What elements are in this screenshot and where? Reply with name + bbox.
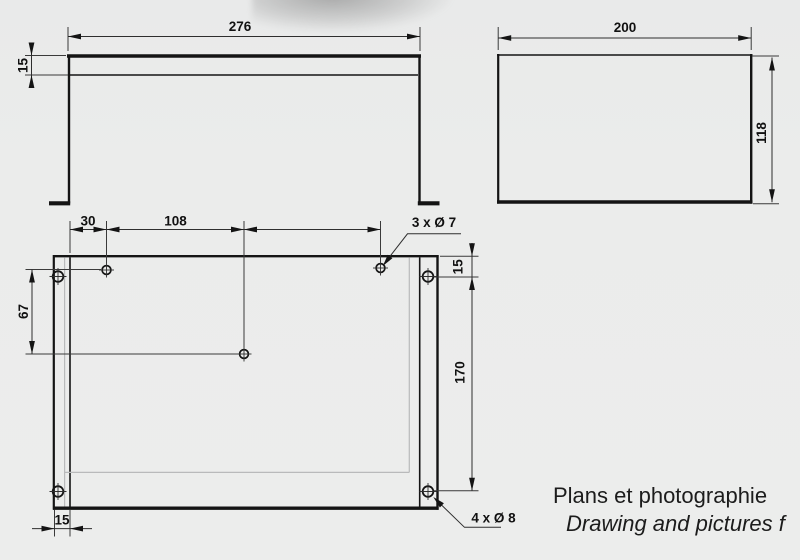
side-height-label: 118 [754, 122, 769, 144]
hole-row-offset-label: 67 [16, 304, 31, 319]
front-view-width-dimension: 276 [68, 19, 420, 51]
plan-view-right-dimensions: 15 170 [434, 243, 479, 491]
side-view-height-dimension: 118 [752, 56, 779, 204]
small-holes-callout-label: 3 x Ø 7 [412, 215, 456, 230]
front-width-label: 276 [229, 19, 252, 34]
small-holes-callout: 3 x Ø 7 [383, 215, 461, 266]
large-holes-callout-label: 4 x Ø 8 [471, 511, 516, 526]
front-flange-label: 15 [16, 58, 31, 74]
caption-english: Drawing and pictures f [566, 511, 788, 536]
caption: Plans et photographie Drawing and pictur… [553, 483, 788, 536]
plan-view-outline [53, 255, 439, 510]
side-view-outline [497, 54, 753, 204]
side-view-depth-dimension: 200 [498, 20, 751, 50]
technical-drawing-page: 276 15 200 [0, 0, 800, 560]
corner-hole-spacing-label: 170 [453, 361, 468, 384]
side-depth-label: 200 [614, 20, 637, 35]
drawing-sheet: 276 15 200 [0, 0, 800, 560]
plan-view-top-dimensions: 30 108 [70, 214, 381, 348]
plan-view-hidden-edges [65, 257, 410, 506]
large-holes-callout: 4 x Ø 8 [433, 497, 516, 527]
caption-french: Plans et photographie [553, 483, 767, 508]
hole-spacing-label: 108 [164, 214, 187, 229]
front-view-flange-dimension: 15 [16, 43, 69, 89]
foot-width-label: 15 [54, 513, 70, 528]
plan-view-corner-holes [50, 268, 437, 500]
corner-hole-top-offset-label: 15 [451, 259, 466, 275]
edge-to-hole-label: 30 [80, 214, 95, 229]
plan-view-left-dimension: 67 [16, 270, 239, 355]
front-view-outline [49, 55, 440, 204]
plan-view-foot-dimension: 15 [32, 510, 92, 537]
